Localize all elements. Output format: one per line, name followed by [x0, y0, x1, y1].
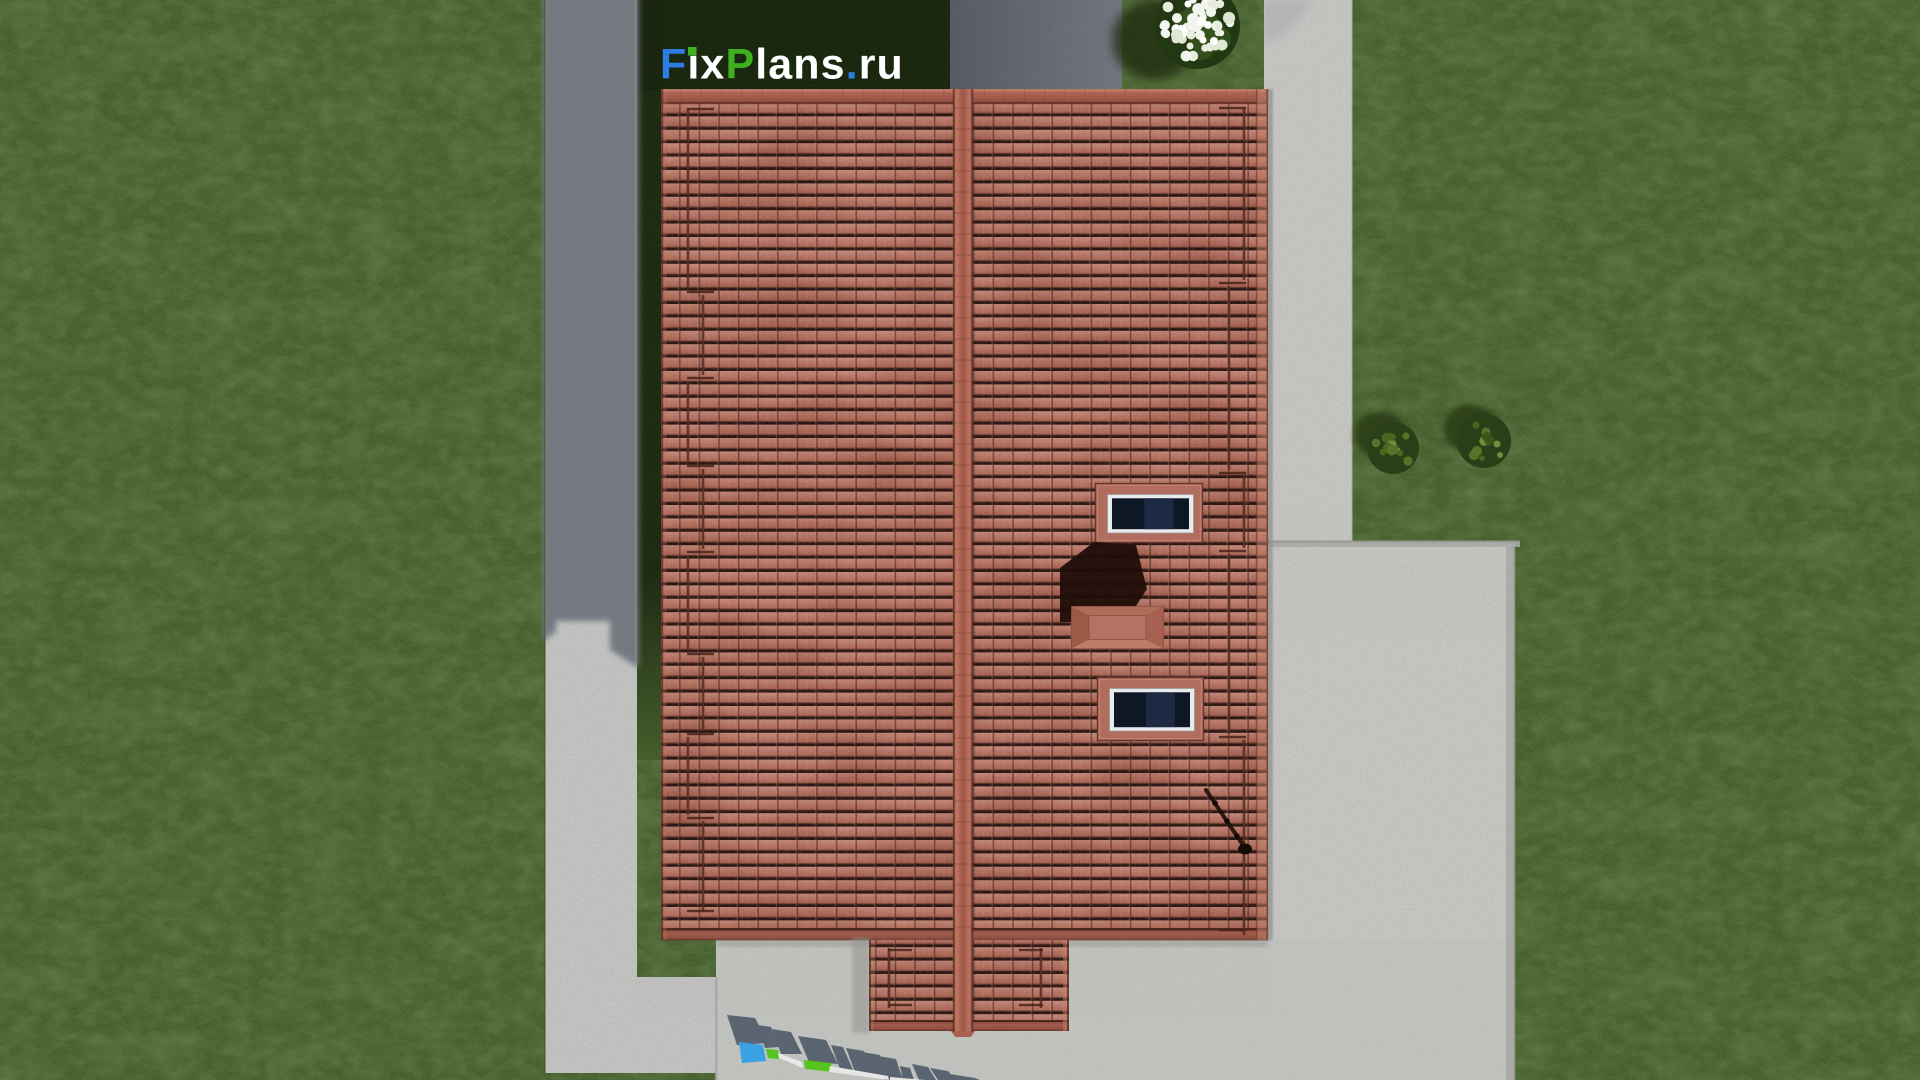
svg-text:FıxPlans.ru: FıxPlans.ru — [660, 41, 904, 89]
